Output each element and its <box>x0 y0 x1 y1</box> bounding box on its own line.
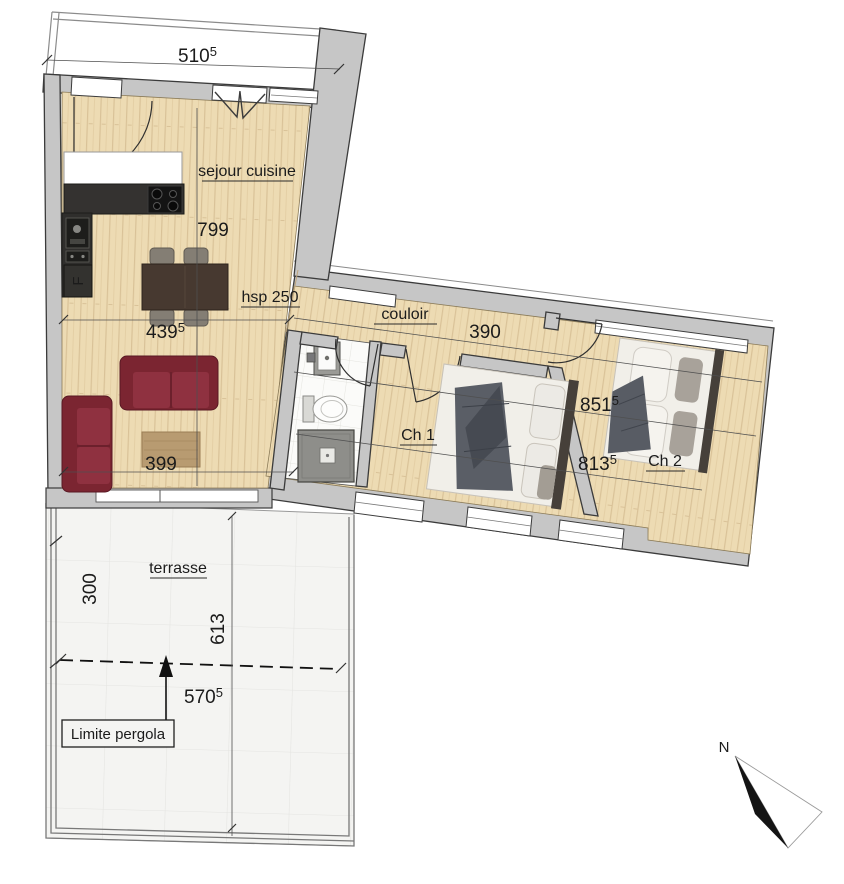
fridge-label: F <box>70 276 87 285</box>
toilet <box>303 396 347 422</box>
terrace-floor <box>46 502 354 846</box>
north-label: N <box>719 739 730 756</box>
room-label-terrasse: terrasse <box>149 560 207 577</box>
dim-799: 799 <box>197 220 229 241</box>
sofa-left <box>62 396 112 492</box>
oven <box>66 218 89 248</box>
ch2-wall-stub <box>544 312 560 330</box>
compass: N <box>719 739 822 848</box>
kitchen-worktop <box>64 152 182 184</box>
floor-plan-svg: F <box>0 0 844 884</box>
drawer <box>66 251 89 262</box>
bed-ch1 <box>426 362 579 510</box>
pergola-limit-label: Limite pergola <box>71 726 166 743</box>
dim-613: 613 <box>208 613 229 645</box>
fridge: F <box>64 265 92 297</box>
west-wall <box>44 74 64 495</box>
dim-399: 399 <box>145 454 177 475</box>
dim-390: 390 <box>469 322 501 343</box>
dim-300: 300 <box>80 573 101 605</box>
room-label-sejour: sejour cuisine <box>198 163 296 180</box>
label-hsp250: hsp 250 <box>242 289 299 306</box>
terrace-sliding-window <box>96 490 258 502</box>
cooktop <box>148 186 182 213</box>
faucet-icon <box>307 353 315 362</box>
room-label-ch1: Ch 1 <box>401 427 435 444</box>
corridor-wall-b <box>380 343 406 358</box>
floor-plan: F <box>0 0 844 884</box>
terrace <box>46 502 354 846</box>
north-window <box>269 88 318 104</box>
room-label-ch2: Ch 2 <box>648 453 682 470</box>
entry-door-opening <box>71 77 122 98</box>
sofa-top <box>120 356 218 410</box>
room-label-couloir: couloir <box>381 306 429 323</box>
